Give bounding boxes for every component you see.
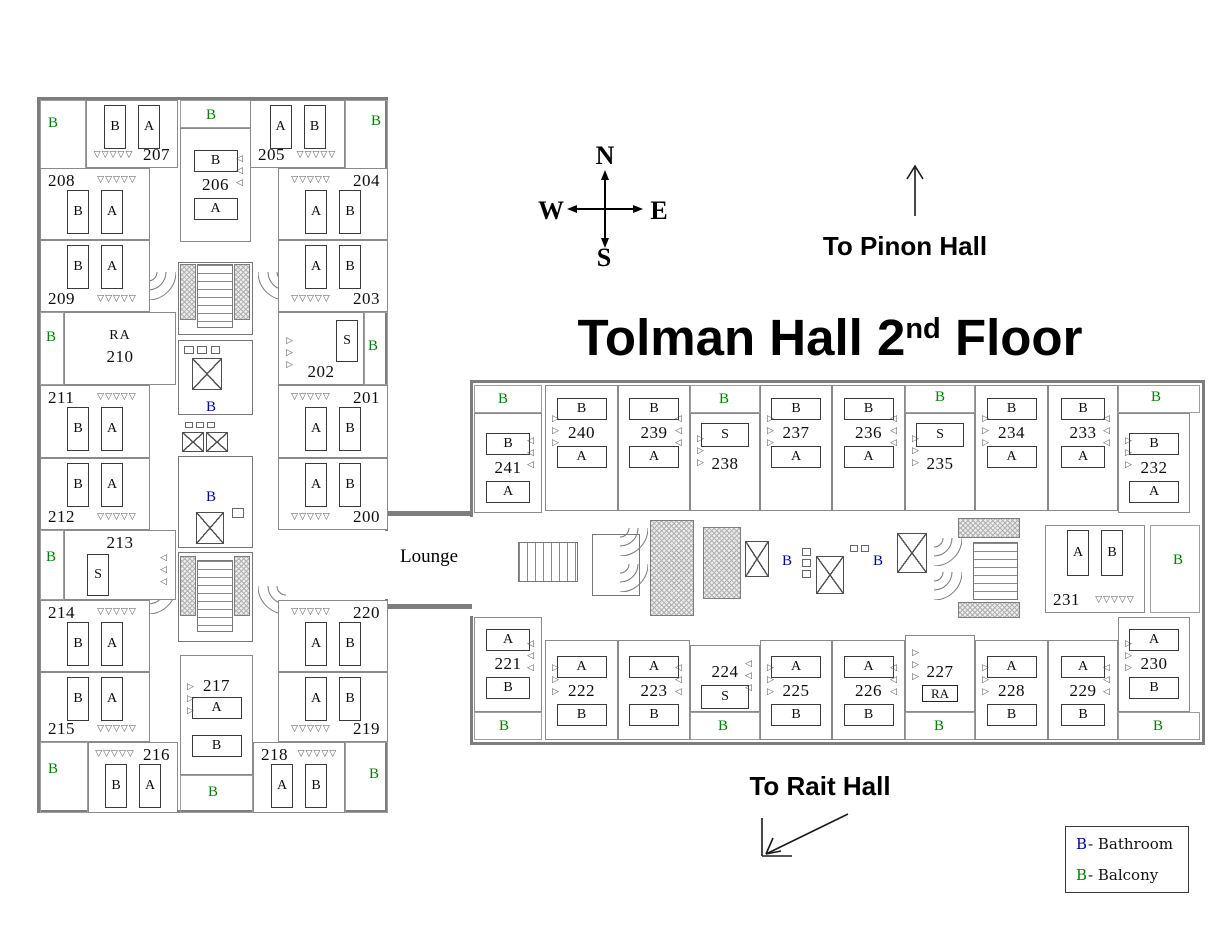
bed-b-label: B: [844, 398, 894, 420]
legend-bathroom-text: - Bathroom: [1088, 835, 1173, 853]
compass-icon: [535, 140, 680, 265]
bed-a-label: A: [101, 622, 123, 666]
bed-a-label: A: [771, 656, 821, 678]
elevator-icon: [745, 541, 769, 577]
bed-b-label: B: [339, 677, 361, 721]
closet-doors-icon: ◁ ◁ ◁: [1100, 662, 1114, 702]
balcony-label: B: [368, 113, 384, 131]
legend-bathroom-symbol: B: [1076, 835, 1087, 853]
elevator-icon: [816, 556, 844, 594]
bed-b-label: B: [987, 398, 1037, 420]
fixture: [861, 545, 869, 552]
bed-b-label: B: [1101, 530, 1123, 576]
fixture: [207, 422, 215, 428]
balcony-label: B: [715, 718, 731, 736]
door-arc-icon: [934, 538, 962, 566]
bed-a-label: A: [101, 463, 123, 507]
bed-b-label: B: [771, 704, 821, 726]
fixture: [802, 570, 811, 578]
balcony-label: B: [1148, 389, 1164, 407]
bed-a-label: A: [844, 446, 894, 468]
closet-doors-icon: ◁ ◁ ◁: [672, 662, 686, 702]
bed-s-label: S: [87, 554, 109, 596]
fixture: [802, 548, 811, 556]
bed-b-label: B: [67, 407, 89, 451]
closet-doors-icon: ▷ ▷ ▷: [184, 681, 198, 721]
bed-a-label: A: [271, 764, 293, 808]
wall-opening: [470, 517, 476, 616]
stair-hatch: [234, 264, 250, 320]
legend-balcony-symbol: B: [1076, 866, 1087, 884]
bed-b-label: B: [67, 190, 89, 234]
closet-doors-icon: ▷ ▷ ▷: [694, 433, 708, 473]
balcony-label: B: [365, 338, 381, 356]
bed-b-label: B: [1061, 398, 1105, 420]
title-text-suffix: Floor: [941, 309, 1083, 366]
lounge-wall: [388, 511, 472, 516]
stair-hatch: [650, 520, 694, 616]
bed-b-label: B: [104, 105, 126, 149]
balcony-area: [40, 312, 64, 385]
balcony-label: B: [932, 389, 948, 407]
balcony-label: B: [205, 784, 221, 802]
door-arc-icon: [620, 564, 648, 592]
bathroom-label: B: [203, 489, 219, 507]
pinon-arrow-icon: [900, 158, 936, 222]
pinon-hall-label: To Pinon Hall: [792, 231, 1018, 262]
rait-hall-label: To Rait Hall: [716, 771, 924, 802]
bed-a-label: A: [557, 446, 607, 468]
bed-a-label: A: [557, 656, 607, 678]
elevator-icon: [196, 512, 224, 544]
closet-doors-icon: ▷ ▷ ▷: [909, 647, 923, 687]
balcony-label: B: [366, 766, 382, 784]
bed-b-label: B: [67, 677, 89, 721]
closet-doors-icon: ▷ ▷ ▷: [979, 413, 993, 453]
bed-a-label: A: [1129, 481, 1179, 503]
bed-a-label: A: [1061, 446, 1105, 468]
closet-doors-icon: ◁ ◁ ◁: [157, 552, 171, 592]
lounge-label: Lounge: [394, 546, 464, 568]
closet-doors-icon: ▽▽▽▽▽: [286, 723, 337, 736]
bed-a-label: A: [486, 481, 530, 503]
fixture: [197, 346, 207, 354]
room-number: 202: [295, 363, 347, 381]
closet-doors-icon: ▷ ▷ ▷: [764, 413, 778, 453]
fixture: [802, 559, 811, 567]
fixture: [185, 422, 193, 428]
bed-a-label: A: [305, 677, 327, 721]
title-superscript: nd: [905, 313, 940, 345]
closet-doors-icon: ◁ ◁ ◁: [887, 413, 901, 453]
bed-b-label: B: [67, 622, 89, 666]
balcony-label: B: [495, 391, 511, 409]
fixture: [211, 346, 220, 354]
bed-b-label: B: [67, 463, 89, 507]
title-text: Tolman Hall 2: [578, 309, 906, 366]
stairs-icon: [973, 542, 1018, 600]
bed-b-label: B: [557, 398, 607, 420]
closet-doors-icon: ◁ ◁ ◁: [524, 435, 538, 475]
bed-s-label: S: [701, 423, 749, 447]
room-number: 204: [332, 172, 380, 190]
closet-doors-icon: ◁ ◁ ◁: [1100, 413, 1114, 453]
bed-a-label: A: [305, 190, 327, 234]
room-number: 201: [332, 389, 380, 407]
closet-doors-icon: ▽▽▽▽▽: [92, 174, 143, 187]
bed-a-label: A: [987, 446, 1037, 468]
stair-hatch: [180, 556, 196, 616]
bed-b-label: B: [1061, 704, 1105, 726]
elevator-icon: [182, 432, 204, 452]
bed-a-label: A: [1067, 530, 1089, 576]
legend: B- Bathroom B- Balcony: [1065, 826, 1189, 893]
bed-b-label: B: [105, 764, 127, 808]
fixture: [232, 508, 244, 518]
fixture: [184, 346, 194, 354]
bed-b-label: B: [194, 150, 238, 172]
balcony-label: B: [496, 718, 512, 736]
closet-doors-icon: ▷ ▷ ▷: [549, 662, 563, 702]
room-number: 215: [48, 720, 96, 738]
balcony-label: B: [931, 718, 947, 736]
stair-hatch: [180, 264, 196, 320]
bed-a-label: A: [1129, 629, 1179, 651]
bed-b-label: B: [304, 105, 326, 149]
room-number: 209: [48, 290, 96, 308]
bed-b-label: B: [339, 463, 361, 507]
balcony-label: B: [716, 391, 732, 409]
bed-b-label: B: [339, 407, 361, 451]
closet-doors-icon: ▽▽▽▽▽: [286, 293, 337, 306]
closet-doors-icon: ▽▽▽▽▽: [1092, 594, 1138, 607]
stair-hatch: [234, 556, 250, 616]
room-number: 208: [48, 172, 96, 190]
balcony-label: B: [45, 761, 61, 779]
closet-doors-icon: ▽▽▽▽▽: [92, 293, 143, 306]
bed-b-label: B: [987, 704, 1037, 726]
door-arc-icon: [620, 528, 648, 556]
ra-label: RA: [922, 685, 958, 702]
rait-arrow-icon: [748, 806, 860, 868]
closet-doors-icon: ▽▽▽▽▽: [295, 149, 339, 162]
balcony-label: B: [43, 329, 59, 347]
fixture: [850, 545, 858, 552]
closet-doors-icon: ▽▽▽▽▽: [94, 748, 135, 761]
closet-doors-icon: ▽▽▽▽▽: [92, 723, 143, 736]
room-number: 211: [48, 389, 96, 407]
legend-bathroom-row: B- Bathroom: [1076, 835, 1178, 853]
bed-b-label: B: [305, 764, 327, 808]
bed-b-label: B: [629, 704, 679, 726]
closet-doors-icon: ▽▽▽▽▽: [92, 149, 134, 162]
bed-b-label: B: [339, 190, 361, 234]
stairs-icon: [197, 560, 233, 632]
bed-a-label: A: [194, 198, 238, 220]
bed-a-label: A: [305, 245, 327, 289]
bed-a-label: A: [305, 407, 327, 451]
bed-b-label: B: [486, 677, 530, 699]
fixture: [196, 422, 204, 428]
legend-balcony-row: B- Balcony: [1076, 866, 1178, 884]
room-number: 214: [48, 604, 96, 622]
closet-doors-icon: ▽▽▽▽▽: [92, 391, 143, 404]
stair-hatch: [958, 518, 1020, 538]
closet-doors-icon: ◁ ◁ ◁: [233, 153, 247, 193]
legend-balcony-text: - Balcony: [1088, 866, 1158, 884]
bed-s-label: S: [336, 320, 358, 362]
closet-doors-icon: ▽▽▽▽▽: [286, 174, 337, 187]
balcony-label: B: [1150, 718, 1166, 736]
elevator-icon: [897, 533, 927, 573]
wall-opening: [383, 531, 391, 599]
door-arc-icon: [934, 572, 962, 600]
door-arc-icon: [148, 272, 176, 300]
room-number: 219: [332, 720, 380, 738]
room-number: 210: [94, 348, 146, 366]
bathroom-label: B: [779, 553, 795, 571]
bed-a-label: A: [101, 245, 123, 289]
page-title: Tolman Hall 2nd Floor: [525, 301, 1135, 366]
closet-doors-icon: ▽▽▽▽▽: [296, 748, 338, 761]
closet-doors-icon: ◁ ◁ ◁: [524, 638, 538, 678]
room-number: 220: [332, 604, 380, 622]
bed-b-label: B: [339, 245, 361, 289]
stairs-icon: [518, 542, 578, 582]
bed-a-label: A: [844, 656, 894, 678]
balcony-label: B: [1170, 552, 1186, 570]
bed-a-label: A: [138, 105, 160, 149]
ra-label: RA: [102, 328, 138, 344]
closet-doors-icon: ◁ ◁ ◁: [887, 662, 901, 702]
elevator-icon: [192, 358, 222, 390]
bathroom-label: B: [870, 553, 886, 571]
bed-a-label: A: [101, 677, 123, 721]
floor-plan: AB200▽▽▽▽▽AB201▽▽▽▽▽S202▷ ▷ ▷AB203▽▽▽▽▽A…: [0, 0, 1232, 952]
closet-doors-icon: ◁ ◁ ◁: [742, 658, 756, 698]
closet-doors-icon: ▷ ▷ ▷: [1122, 435, 1136, 475]
closet-doors-icon: ▽▽▽▽▽: [286, 391, 337, 404]
bed-b-label: B: [771, 398, 821, 420]
stairs-icon: [197, 264, 233, 328]
bed-a-label: A: [305, 622, 327, 666]
bed-a-label: A: [101, 407, 123, 451]
bed-a-label: A: [270, 105, 292, 149]
bed-b-label: B: [557, 704, 607, 726]
closet-doors-icon: ▷ ▷ ▷: [283, 335, 297, 375]
elevator-icon: [206, 432, 228, 452]
bed-b-label: B: [1129, 433, 1179, 455]
bed-s-label: S: [916, 423, 964, 447]
closet-doors-icon: ▷ ▷ ▷: [979, 662, 993, 702]
balcony-label: B: [45, 115, 61, 133]
closet-doors-icon: ▷ ▷ ▷: [909, 433, 923, 473]
stair-hatch: [958, 602, 1020, 618]
room-number: 212: [48, 508, 96, 526]
bed-b-label: B: [339, 622, 361, 666]
bed-a-label: A: [305, 463, 327, 507]
bathroom-label: B: [203, 399, 219, 417]
bed-a-label: A: [1061, 656, 1105, 678]
closet-doors-icon: ▽▽▽▽▽: [92, 511, 143, 524]
room-number: 203: [332, 290, 380, 308]
bed-a-label: A: [987, 656, 1037, 678]
bed-b-label: B: [1129, 677, 1179, 699]
stair-hatch: [703, 527, 741, 599]
closet-doors-icon: ▽▽▽▽▽: [92, 606, 143, 619]
bed-a-label: A: [101, 190, 123, 234]
closet-doors-icon: ▷ ▷ ▷: [549, 413, 563, 453]
balcony-label: B: [43, 549, 59, 567]
room-number: 213: [94, 534, 146, 552]
balcony-label: B: [203, 107, 219, 125]
closet-doors-icon: ◁ ◁ ◁: [672, 413, 686, 453]
room-number: 200: [332, 508, 380, 526]
bed-a-label: A: [771, 446, 821, 468]
bed-b-label: B: [844, 704, 894, 726]
closet-doors-icon: ▷ ▷ ▷: [1122, 638, 1136, 678]
bed-b-label: B: [192, 735, 242, 757]
closet-doors-icon: ▷ ▷ ▷: [764, 662, 778, 702]
bed-a-label: A: [192, 697, 242, 719]
lounge-wall: [388, 604, 472, 609]
closet-doors-icon: ▽▽▽▽▽: [286, 511, 337, 524]
bed-a-label: A: [139, 764, 161, 808]
closet-doors-icon: ▽▽▽▽▽: [286, 606, 337, 619]
bed-b-label: B: [67, 245, 89, 289]
